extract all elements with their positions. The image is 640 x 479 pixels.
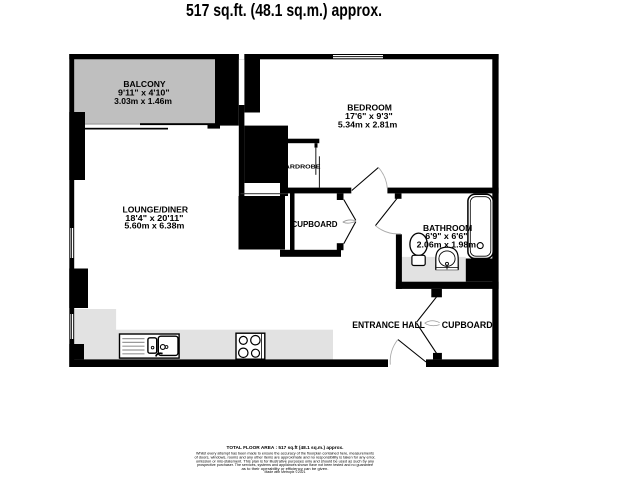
svg-text:5.34m x 2.81m: 5.34m x 2.81m (338, 121, 397, 130)
svg-text:CUPBOARD: CUPBOARD (442, 320, 493, 330)
svg-text:3.03m x 1.46m: 3.03m x 1.46m (114, 97, 172, 106)
svg-text:CUPBOARD: CUPBOARD (292, 219, 338, 229)
svg-text:Made with Metropix ©2021: Made with Metropix ©2021 (265, 469, 306, 474)
svg-text:BEDROOM: BEDROOM (347, 102, 392, 112)
svg-text:2.06m x 1.98m: 2.06m x 1.98m (417, 240, 476, 249)
svg-text:5.60m x 6.38m: 5.60m x 6.38m (124, 222, 184, 231)
svg-text:BALCONY: BALCONY (123, 79, 165, 89)
svg-text:TOTAL FLOOR AREA : 517 sq.ft (: TOTAL FLOOR AREA : 517 sq.ft (48.1 sq.m.… (227, 445, 344, 450)
svg-text:ENTRANCE HALL: ENTRANCE HALL (352, 320, 425, 330)
svg-text:517 sq.ft. (48.1 sq.m.) approx: 517 sq.ft. (48.1 sq.m.) approx. (186, 0, 382, 20)
